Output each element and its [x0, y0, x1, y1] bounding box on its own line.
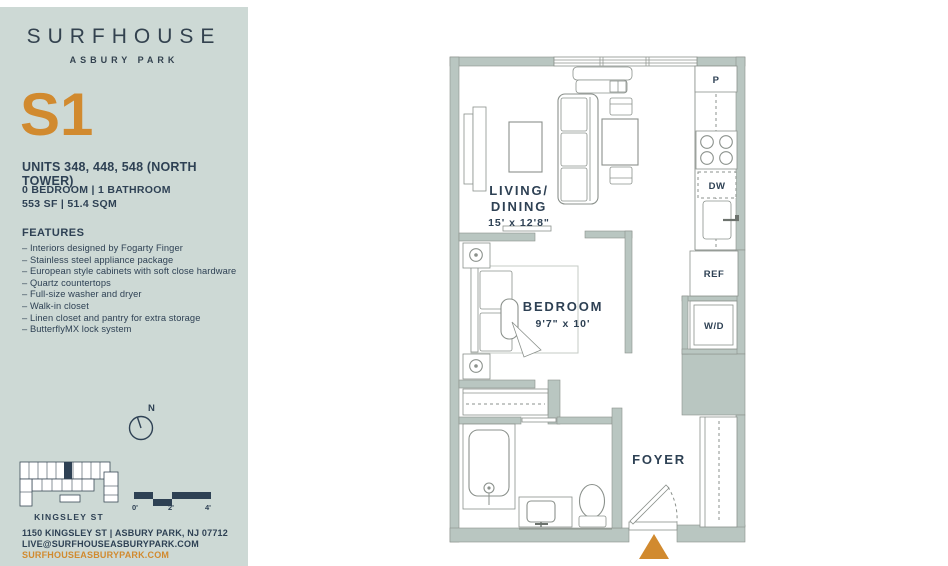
- entry-marker: [639, 534, 669, 559]
- foyer-label: FOYER: [632, 452, 686, 467]
- window-band: [554, 57, 697, 66]
- flyer-page: SURFHOUSE ASBURY PARK S1 UNITS 348, 448,…: [0, 0, 948, 566]
- living-dining-label: LIVING/ DINING 15' x 12'8": [488, 183, 550, 229]
- sofa: [558, 94, 598, 204]
- floorplan-drawing: P DW REF W/D: [0, 0, 948, 566]
- entry-door: [629, 485, 677, 530]
- dishwasher: DW: [698, 172, 736, 198]
- pantry-box: P: [695, 66, 737, 92]
- nightstand-bottom: [463, 354, 490, 379]
- nightstand-top: [463, 243, 490, 268]
- bedroom-name: BEDROOM: [523, 299, 604, 314]
- walk-in-closet: [463, 389, 548, 415]
- living-label-line2: DINING: [491, 199, 547, 214]
- bedroom-label: BEDROOM 9'7" x 10': [523, 299, 604, 330]
- stove: [696, 131, 737, 169]
- coffee-table: [509, 122, 542, 172]
- living-label-line1: LIVING/: [489, 183, 549, 198]
- bathtub: [463, 424, 515, 509]
- refrigerator: REF: [690, 251, 738, 296]
- bathroom-door: [522, 418, 556, 422]
- pantry-label: P: [713, 75, 720, 86]
- washer-dryer: W/D: [690, 301, 737, 349]
- refrigerator-label: REF: [704, 269, 725, 280]
- kitchen-sink: [703, 201, 739, 239]
- dishwasher-label: DW: [709, 181, 726, 192]
- living-dims: 15' x 12'8": [488, 217, 550, 229]
- dining-table: [602, 98, 638, 184]
- washer-dryer-label: W/D: [704, 321, 724, 332]
- toilet: [579, 485, 606, 528]
- media-console: [573, 67, 632, 93]
- tv-console: [464, 107, 486, 191]
- bedroom-dims: 9'7" x 10': [535, 318, 590, 330]
- foyer-closet: [700, 417, 737, 527]
